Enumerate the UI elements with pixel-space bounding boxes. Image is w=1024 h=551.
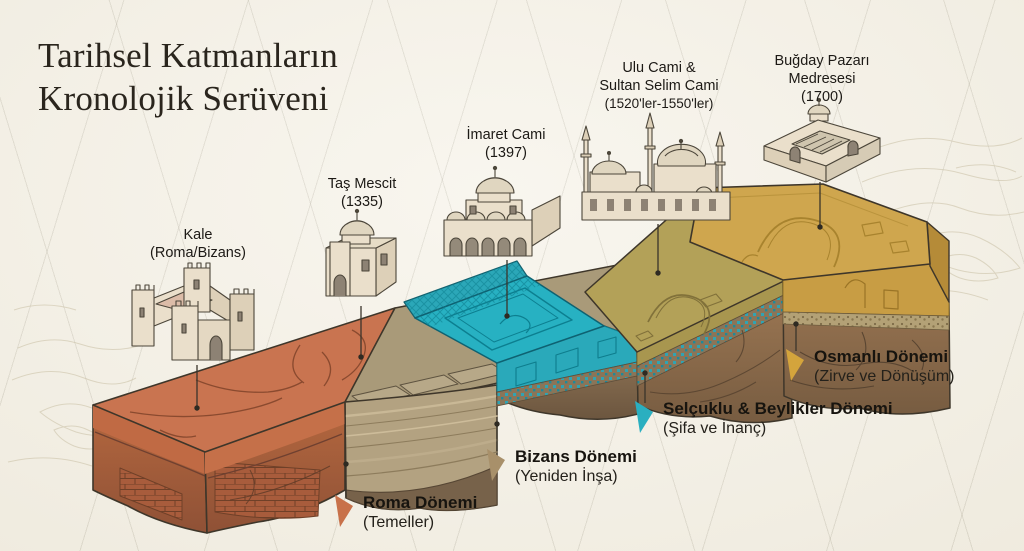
label-ulu-cami: Ulu Cami & Sultan Selim Cami (1520'ler-1… [599,60,718,113]
legend-selcuklu-name: Selçuklu & Beylikler Dönemi [663,398,893,419]
legend-bizans: Bizans Dönemi (Yeniden İnşa) [486,446,637,488]
kale-illustration [132,263,254,360]
label-tas-mescit: Taş Mescit (1335) [328,176,397,212]
ulu-cami-illustration [581,113,730,220]
legend-osmanli-name: Osmanlı Dönemi [814,346,954,367]
legend-bizans-subtitle: (Yeniden İnşa) [515,467,637,488]
label-imaret-cami-name: İmaret Cami [467,127,546,145]
page-title-line1: Tarihsel Katmanların [38,34,338,77]
legend-osmanli-subtitle: (Zirve ve Dönüşüm) [814,367,954,388]
imaret-cami-illustration [444,166,560,256]
label-kale: Kale (Roma/Bizans) [150,227,246,263]
legend-roma-name: Roma Dönemi [363,492,477,513]
bugday-pazari-illustration [764,99,880,183]
tas-mescit-illustration [326,209,396,296]
label-bugday-pazari-name2: Medresesi [774,71,869,89]
selcuklu-marker-icon [634,400,654,434]
label-bugday-pazari-name1: Buğday Pazarı [774,53,869,71]
bizans-marker-icon [486,448,506,482]
label-tas-mescit-detail: (1335) [328,194,397,212]
label-bugday-pazari: Buğday Pazarı Medresesi (1700) [774,53,869,107]
label-kale-detail: (Roma/Bizans) [150,245,246,263]
infographic-canvas: Tarihsel Katmanların Kronolojik Serüveni… [0,0,1024,551]
label-imaret-cami: İmaret Cami (1397) [467,127,546,163]
legend-bizans-name: Bizans Dönemi [515,446,637,467]
legend-selcuklu: Selçuklu & Beylikler Dönemi (Şifa ve İna… [634,398,893,440]
page-title-line2: Kronolojik Serüveni [38,77,338,120]
label-ulu-cami-name2: Sultan Selim Cami [599,78,718,96]
label-ulu-cami-detail: (1520'ler-1550'ler) [599,96,718,113]
legend-roma: Roma Dönemi (Temeller) [334,492,477,534]
osmanli-marker-icon [785,348,805,382]
label-bugday-pazari-detail: (1700) [774,89,869,107]
label-kale-name: Kale [150,227,246,245]
roma-marker-icon [334,494,354,528]
label-ulu-cami-name1: Ulu Cami & [599,60,718,78]
label-tas-mescit-name: Taş Mescit [328,176,397,194]
legend-selcuklu-subtitle: (Şifa ve İnanç) [663,419,893,440]
label-imaret-cami-detail: (1397) [467,145,546,163]
page-title: Tarihsel Katmanların Kronolojik Serüveni [38,34,338,121]
legend-roma-subtitle: (Temeller) [363,513,477,534]
legend-osmanli: Osmanlı Dönemi (Zirve ve Dönüşüm) [785,346,954,388]
